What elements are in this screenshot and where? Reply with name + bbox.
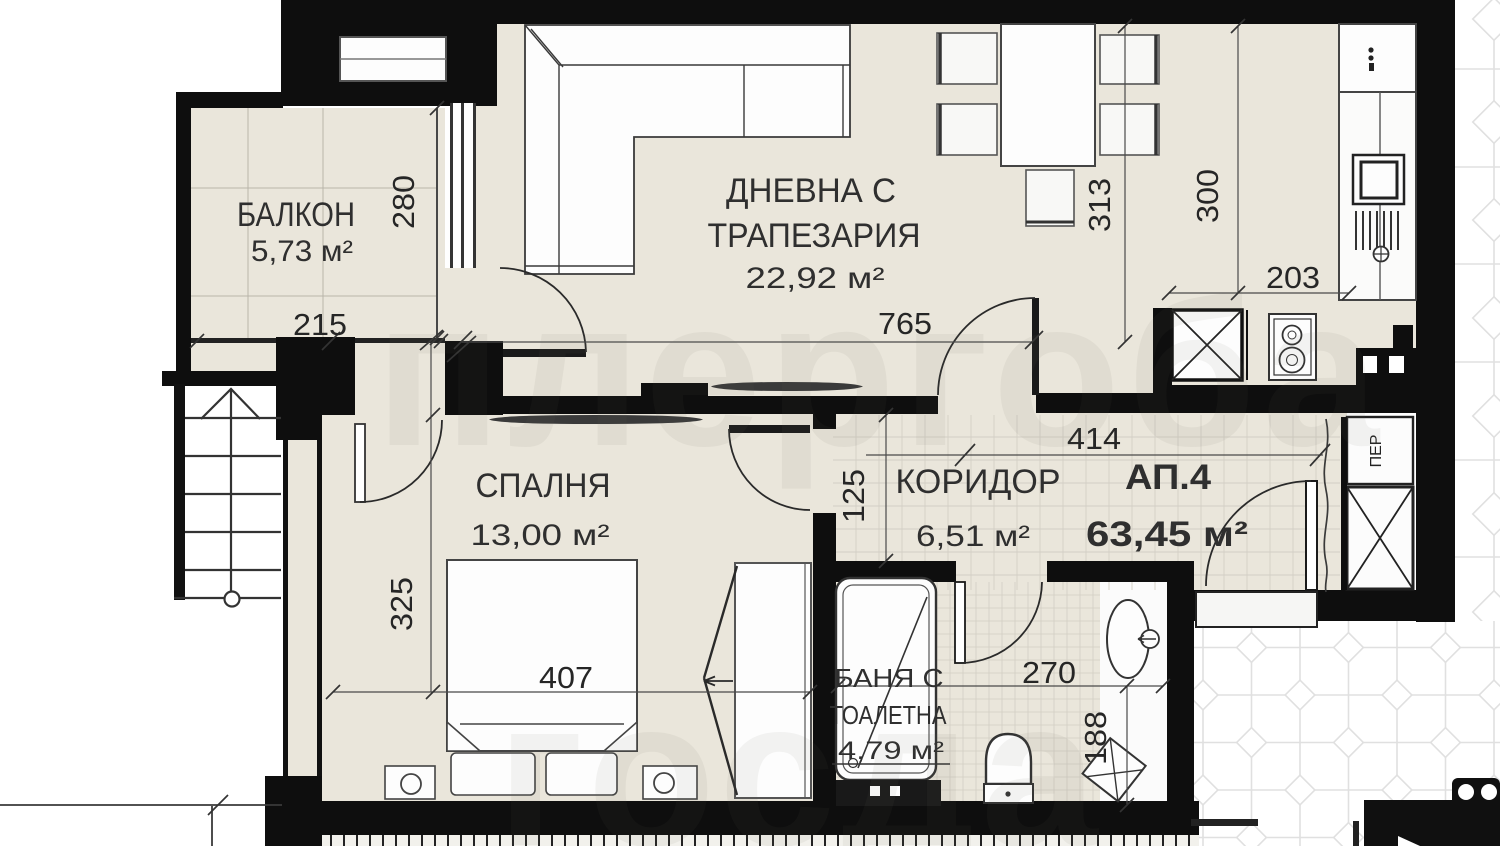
svg-text:госда: госда	[496, 655, 1103, 846]
svg-text:БАЛКОН: БАЛКОН	[237, 196, 355, 234]
svg-text:215: 215	[293, 307, 347, 342]
svg-text:325: 325	[384, 577, 419, 631]
svg-text:313: 313	[1082, 178, 1117, 232]
svg-text:ДНЕВНА С: ДНЕВНА С	[726, 172, 896, 210]
svg-text:плергоба: плергоба	[375, 255, 1385, 490]
svg-text:63,45 м²: 63,45 м²	[1086, 515, 1248, 554]
svg-text:5,73 м²: 5,73 м²	[251, 235, 353, 268]
svg-text:ТРАПЕЗАРИЯ: ТРАПЕЗАРИЯ	[708, 217, 921, 255]
svg-text:6,51 м²: 6,51 м²	[916, 520, 1030, 553]
svg-text:13,00 м²: 13,00 м²	[471, 519, 610, 552]
svg-text:280: 280	[386, 175, 421, 229]
svg-text:300: 300	[1190, 169, 1225, 223]
